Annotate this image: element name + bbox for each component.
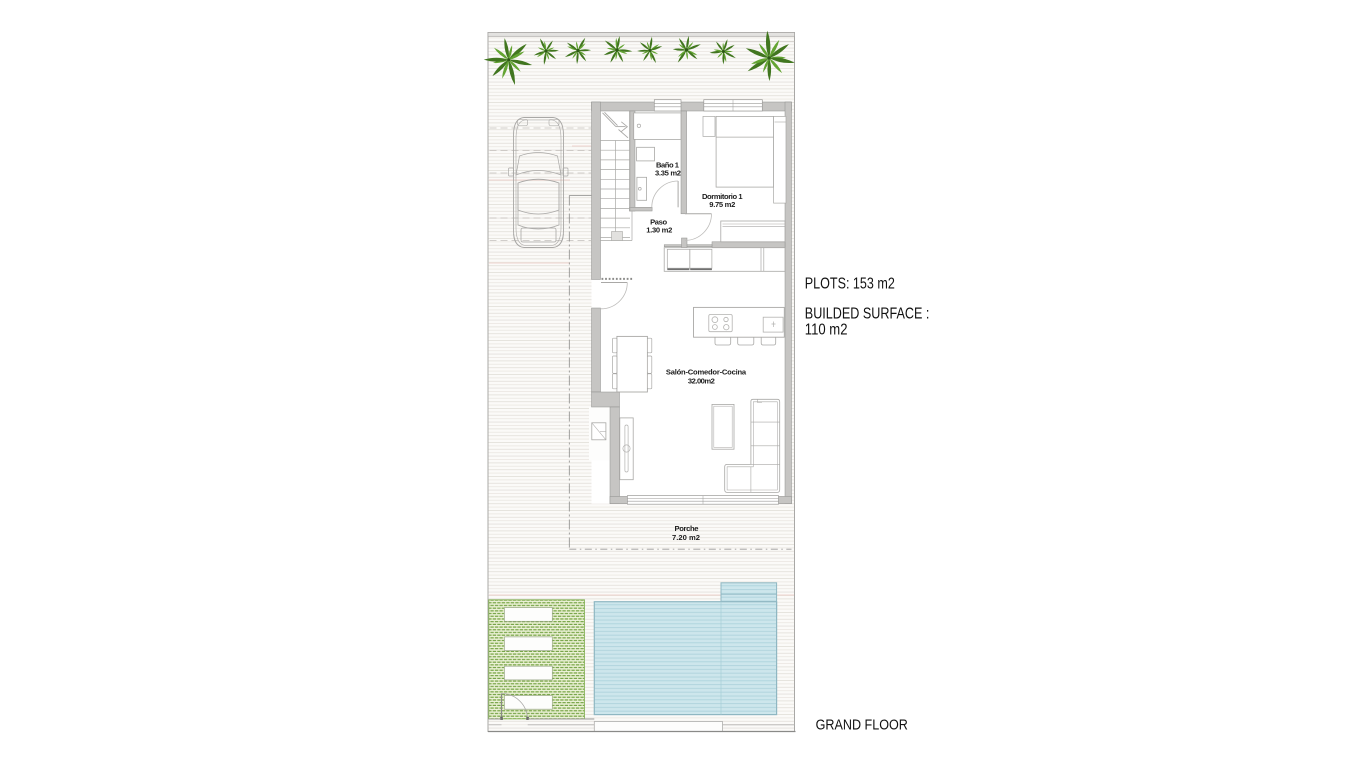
svg-text:Porche: Porche [675, 524, 699, 533]
svg-text:32.00m2: 32.00m2 [688, 377, 715, 386]
svg-text:Salón-Comedor-Cocina: Salón-Comedor-Cocina [666, 368, 747, 377]
svg-text:GRAND FLOOR: GRAND FLOOR [816, 716, 908, 733]
svg-text:PLOTS: 153 m2: PLOTS: 153 m2 [805, 276, 895, 293]
svg-text:1.30 m2: 1.30 m2 [646, 226, 672, 235]
svg-text:BUILDED SURFACE :: BUILDED SURFACE : [805, 306, 930, 323]
svg-text:3.35 m2: 3.35 m2 [655, 169, 681, 178]
svg-text:110 m2: 110 m2 [805, 321, 848, 338]
svg-text:9.75 m2: 9.75 m2 [709, 200, 735, 209]
svg-text:7.20 m2: 7.20 m2 [672, 533, 700, 542]
